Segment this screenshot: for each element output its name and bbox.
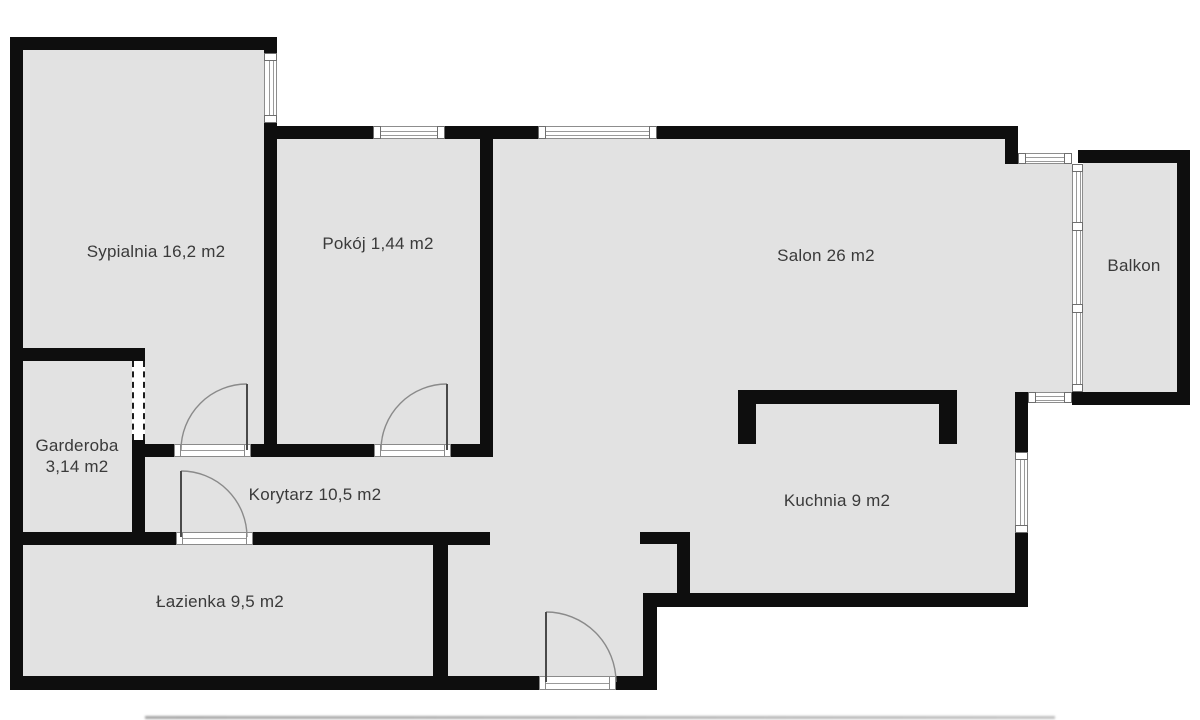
floor-plan: Sypialnia 16,2 m2 Pokój 1,44 m2 Salon 26… bbox=[0, 0, 1200, 720]
room-label-salon: Salon 26 m2 bbox=[777, 246, 875, 266]
door-arc-sypialnia bbox=[181, 384, 247, 450]
room-label-sypialnia: Sypialnia 16,2 m2 bbox=[87, 242, 226, 262]
door-arc-pokoj bbox=[381, 384, 447, 450]
room-label-garderoba-line2: 3,14 m2 bbox=[35, 456, 118, 477]
room-label-pokoj: Pokój 1,44 m2 bbox=[322, 234, 433, 254]
room-label-garderoba-line1: Garderoba bbox=[35, 435, 118, 456]
room-label-korytarz: Korytarz 10,5 m2 bbox=[249, 485, 382, 505]
room-label-lazienka: Łazienka 9,5 m2 bbox=[156, 592, 284, 612]
door-swings bbox=[0, 0, 1200, 720]
room-label-balkon: Balkon bbox=[1107, 256, 1160, 276]
door-arc-lazienka bbox=[181, 471, 247, 537]
room-label-garderoba: Garderoba 3,14 m2 bbox=[35, 435, 118, 477]
room-label-kuchnia: Kuchnia 9 m2 bbox=[784, 491, 890, 511]
door-arc-entrance bbox=[546, 612, 616, 682]
cropped-text-artifact bbox=[145, 716, 1055, 719]
